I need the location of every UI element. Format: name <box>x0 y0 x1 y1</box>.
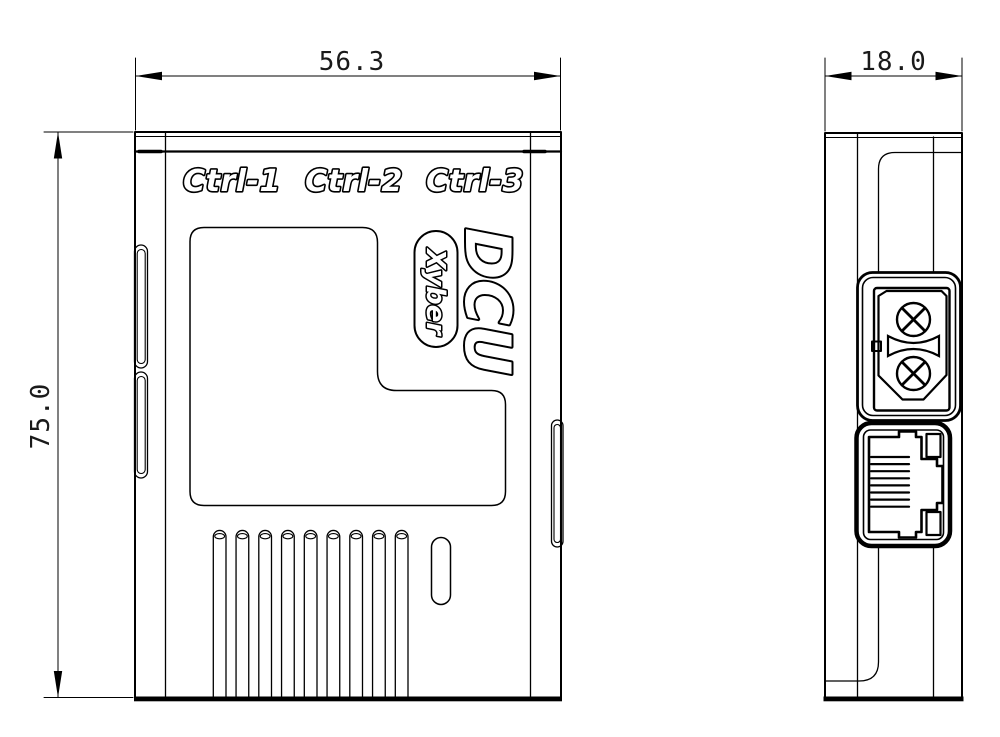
dcu-logo: DCU <box>451 228 524 375</box>
left-clip-lower <box>135 372 148 478</box>
width-dim-text: 56.3 <box>319 47 386 77</box>
vent-slot-cap <box>351 534 361 539</box>
vent-slot-cap <box>238 534 248 539</box>
vent-slot <box>373 530 386 699</box>
ctrl-3-label: Ctrl-3 <box>426 164 524 199</box>
vent-slot <box>236 530 249 699</box>
rj45-ethernet-port-icon <box>857 423 951 546</box>
side-shell-contour-lower <box>825 547 879 682</box>
side-view <box>824 133 964 701</box>
side-shell-contour-upper <box>879 153 963 273</box>
arrowhead-bottom <box>54 671 62 698</box>
vent-slots <box>213 530 408 699</box>
arrowhead-left <box>136 72 163 80</box>
left-clip-upper <box>135 245 148 368</box>
vent-slot-cap <box>329 534 339 539</box>
ctrl-1-label: Ctrl-1 <box>183 164 281 199</box>
vent-slot <box>259 530 272 699</box>
vent-slot-cap <box>215 534 225 539</box>
depth-dimension: 18.0 <box>825 47 962 131</box>
xt30-power-connector-icon <box>858 273 961 421</box>
arrowhead-top <box>54 132 62 159</box>
vent-slot <box>327 530 340 699</box>
vent-slot <box>350 530 363 699</box>
ctrl-2-label: Ctrl-2 <box>305 164 403 199</box>
front-enclosure-outline <box>135 132 561 700</box>
vent-slot-cap <box>374 534 384 539</box>
arrowhead-right <box>534 72 561 80</box>
vent-slot-cap <box>306 534 316 539</box>
vent-slot-cap <box>283 534 293 539</box>
vent-slot <box>213 530 226 699</box>
depth-dim-text: 18.0 <box>860 47 927 77</box>
vent-slot-cap <box>260 534 270 539</box>
xyber-label: Xyber <box>420 247 450 337</box>
height-dim-text: 75.0 <box>26 383 56 450</box>
side-bottom-thick-edge <box>824 697 964 702</box>
width-dimension: 56.3 <box>136 47 561 130</box>
arrowhead-left <box>825 72 852 80</box>
vent-slot-cap <box>397 534 407 539</box>
arrowhead-right <box>936 72 963 80</box>
front-view: Ctrl-1 Ctrl-2 Ctrl-3 DCU Xyber <box>134 132 563 701</box>
vent-slot <box>282 530 295 699</box>
vent-slot <box>395 530 408 699</box>
front-bottom-thick-edge <box>134 697 562 702</box>
reset-slot <box>432 538 451 605</box>
technical-drawing-page: Ctrl-1 Ctrl-2 Ctrl-3 DCU Xyber 56.3 75.0 <box>0 0 1000 737</box>
cad-drawing: Ctrl-1 Ctrl-2 Ctrl-3 DCU Xyber 56.3 75.0 <box>0 0 1000 737</box>
height-dimension: 75.0 <box>26 132 133 698</box>
vent-slot <box>304 530 317 699</box>
